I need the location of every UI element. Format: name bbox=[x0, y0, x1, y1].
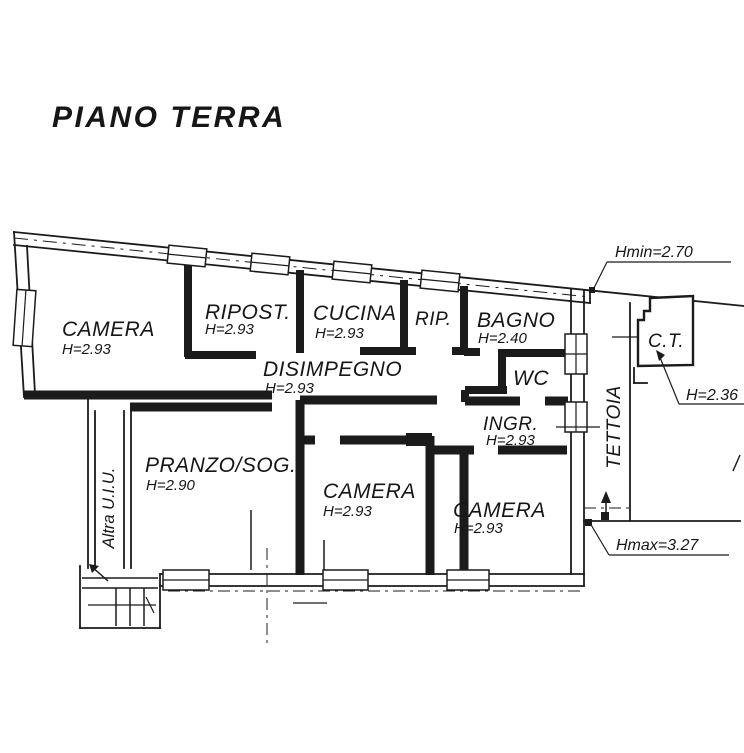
room-label-bagno: BAGNO bbox=[477, 309, 555, 332]
room-height-ripostiglio: H=2.93 bbox=[205, 321, 254, 338]
hmax-leader bbox=[590, 523, 609, 555]
label-altra-uiu: Altra U.I.U. bbox=[100, 468, 118, 550]
hmax-marker bbox=[585, 519, 592, 526]
room-label-tettoia: TETTOIA bbox=[604, 385, 625, 468]
room-label-ct: C.T. bbox=[648, 331, 684, 352]
room-height-cucina: H=2.93 bbox=[315, 325, 364, 342]
room-label-camera-se: CAMERA bbox=[453, 499, 546, 522]
window-top-1 bbox=[167, 245, 207, 267]
room-label-pranzo: PRANZO/SOG. bbox=[145, 454, 296, 477]
room-height-camera-nw: H=2.93 bbox=[62, 341, 111, 358]
room-height-ingresso: H=2.93 bbox=[486, 432, 535, 449]
hmin-leader bbox=[593, 262, 607, 290]
window-top-2 bbox=[250, 253, 290, 275]
room-label-disimpegno: DISIMPEGNO bbox=[263, 358, 402, 381]
tettoia-arrow-base bbox=[601, 512, 609, 520]
annotation-h-ct: H=2.36 bbox=[686, 387, 738, 404]
window-bottom-1 bbox=[163, 570, 209, 590]
edge-partial-mark bbox=[733, 455, 740, 471]
scanned-floorplan-page: PIANO TERRA bbox=[0, 0, 744, 753]
window-top-3 bbox=[332, 261, 372, 283]
room-label-cucina: CUCINA bbox=[313, 302, 397, 325]
window-right bbox=[565, 334, 587, 374]
room-label-rip: RIP. bbox=[415, 309, 452, 330]
room-height-bagno: H=2.40 bbox=[478, 330, 527, 347]
page-title: PIANO TERRA bbox=[52, 101, 286, 134]
room-height-camera-se: H=2.93 bbox=[454, 520, 503, 537]
room-labels: CAMERA H=2.93 RIPOST. H=2.93 CUCINA H=2.… bbox=[62, 301, 684, 549]
tettoia-arrow bbox=[601, 491, 611, 520]
window-bottom-3 bbox=[447, 570, 489, 590]
room-label-camera-center: CAMERA bbox=[323, 480, 416, 503]
window-bottom-2 bbox=[323, 570, 368, 590]
hmin-marker bbox=[589, 287, 595, 293]
window-top-4 bbox=[420, 270, 460, 292]
window-left bbox=[13, 289, 36, 346]
annotation-hmax: Hmax=3.27 bbox=[616, 537, 699, 554]
room-label-camera-nw: CAMERA bbox=[62, 318, 155, 341]
room-label-wc: WC bbox=[513, 367, 549, 390]
room-height-pranzo: H=2.90 bbox=[146, 477, 195, 494]
room-height-disimpegno: H=2.93 bbox=[265, 380, 314, 397]
floorplan-drawing: PIANO TERRA bbox=[0, 0, 744, 753]
annotation-hmin: Hmin=2.70 bbox=[615, 244, 693, 261]
wall-thickening bbox=[406, 433, 432, 446]
tettoia-arrow-head bbox=[601, 491, 611, 503]
staircase bbox=[80, 564, 160, 628]
room-height-camera-center: H=2.93 bbox=[323, 503, 372, 520]
